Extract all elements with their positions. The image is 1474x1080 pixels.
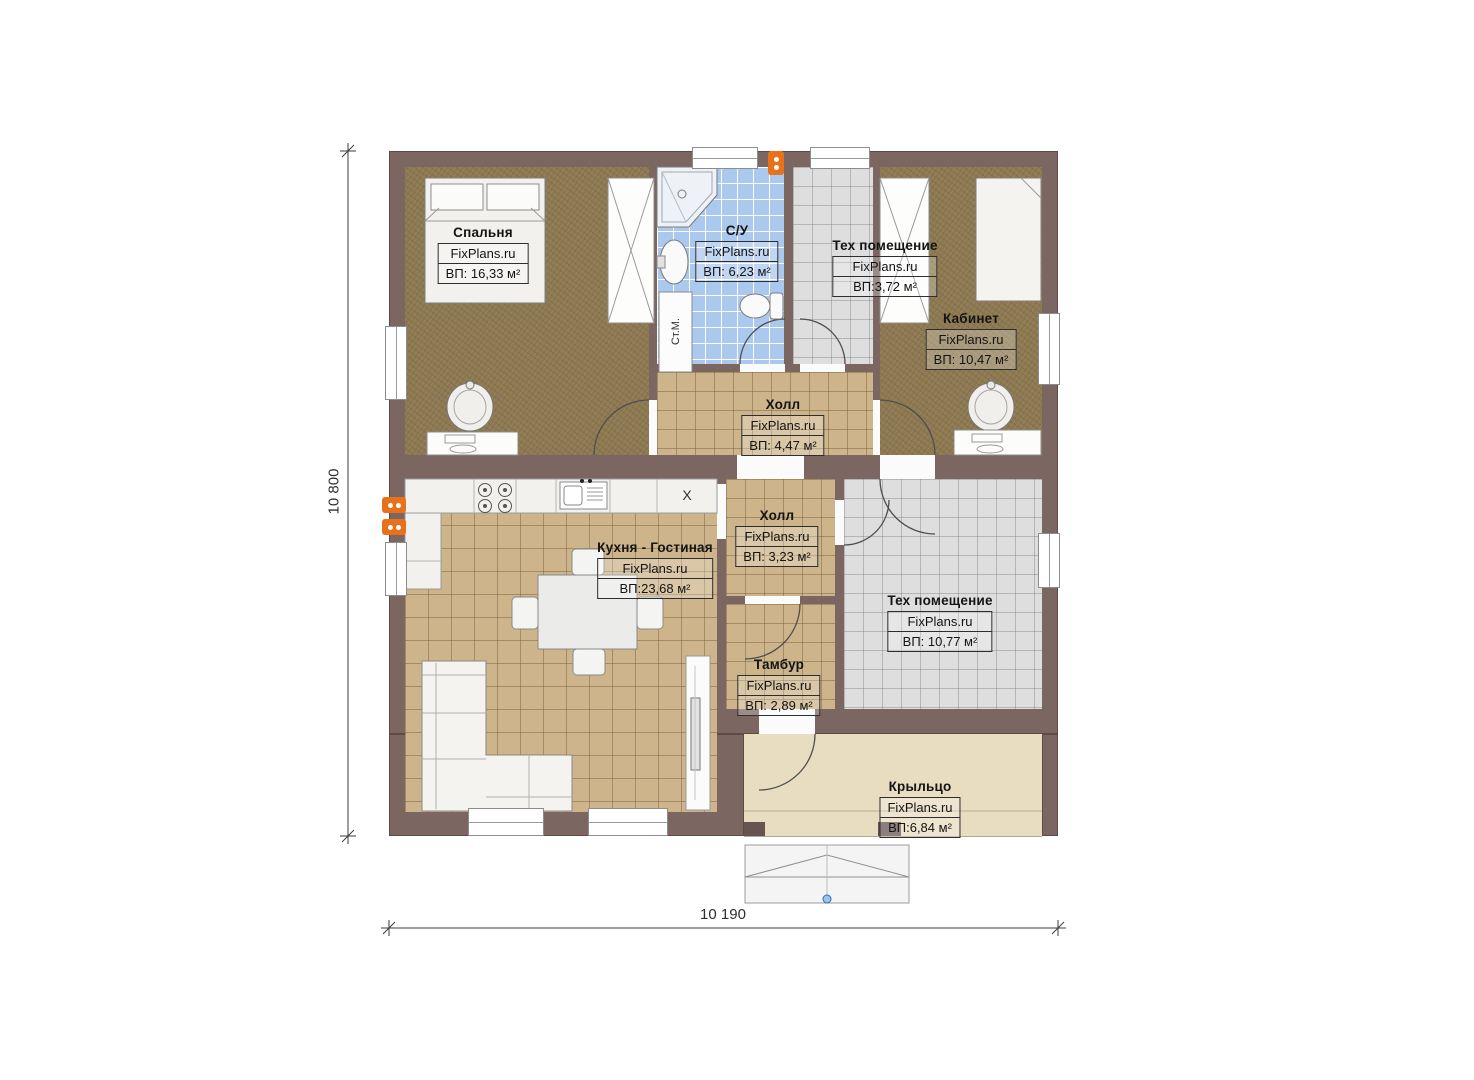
entry-steps-icon — [745, 845, 909, 903]
room-area: ВП: 16,33 м² — [438, 264, 529, 284]
room-label-office: Кабинет FixPlans.ru ВП: 10,47 м² — [926, 311, 1017, 370]
room-title: Кухня - Гостиная — [597, 540, 713, 556]
fridge-mark-label: X — [672, 487, 702, 503]
room-area: ВП:6,84 м² — [879, 818, 960, 838]
room-label-bathroom: С/У FixPlans.ru ВП: 6,23 м² — [695, 223, 778, 282]
room-brand: FixPlans.ru — [879, 797, 960, 818]
room-title: Крыльцо — [879, 779, 960, 795]
window-tech-large-right — [1038, 533, 1060, 588]
tv-stand-icon — [686, 656, 710, 810]
room-label-kitchen-living: Кухня - Гостиная FixPlans.ru ВП:23,68 м² — [597, 540, 713, 599]
room-brand: FixPlans.ru — [737, 675, 820, 696]
socket-icon-2 — [382, 519, 406, 535]
room-area: ВП: 3,23 м² — [735, 547, 818, 567]
room-brand: FixPlans.ru — [741, 415, 824, 436]
room-label-hall-upper: Холл FixPlans.ru ВП: 4,47 м² — [741, 397, 824, 456]
room-area: ВП: 2,89 м² — [737, 696, 820, 716]
electrical-panel-icon — [768, 151, 784, 175]
sofa-icon — [422, 661, 572, 811]
window-living-left — [385, 542, 407, 596]
kitchen-sink-icon — [560, 479, 607, 509]
room-area: ВП: 10,47 м² — [926, 350, 1017, 370]
dimension-height-label: 10 800 — [326, 447, 343, 537]
room-area: ВП:23,68 м² — [597, 579, 713, 599]
room-label-porch: Крыльцо FixPlans.ru ВП:6,84 м² — [879, 779, 960, 838]
room-area: ВП: 6,23 м² — [695, 262, 778, 282]
room-label-tech-large: Тех помещение FixPlans.ru ВП: 10,77 м² — [887, 593, 992, 652]
room-area: ВП:3,72 м² — [832, 277, 937, 297]
room-area: ВП: 4,47 м² — [741, 436, 824, 456]
wardrobe-bedroom-icon — [608, 178, 654, 323]
socket-icon-1 — [382, 497, 406, 513]
window-bathroom-top — [692, 147, 758, 169]
room-title: Тамбур — [737, 657, 820, 673]
window-tech-small-top — [810, 147, 870, 169]
window-living-bottom-1 — [468, 808, 544, 836]
pot-office-icon — [959, 381, 1023, 431]
room-brand: FixPlans.ru — [735, 526, 818, 547]
room-brand: FixPlans.ru — [695, 241, 778, 262]
floor-plan-page: 10 800 10 190 — [0, 0, 1474, 1080]
room-title: Тех помещение — [887, 593, 992, 609]
room-title: С/У — [695, 223, 778, 239]
pot-bedroom-icon — [438, 381, 502, 431]
room-brand: FixPlans.ru — [438, 243, 529, 264]
room-title: Холл — [741, 397, 824, 413]
room-label-bedroom: Спальня FixPlans.ru ВП: 16,33 м² — [438, 225, 529, 284]
desk-office-icon — [954, 430, 1041, 455]
room-brand: FixPlans.ru — [597, 558, 713, 579]
room-label-tech-small: Тех помещение FixPlans.ru ВП:3,72 м² — [832, 238, 937, 297]
window-office-right — [1038, 313, 1060, 385]
sink-icon — [657, 240, 688, 284]
window-living-bottom-2 — [588, 808, 668, 836]
desk-bedroom-icon — [427, 432, 518, 455]
room-brand: FixPlans.ru — [832, 256, 937, 277]
room-label-hall-lower: Холл FixPlans.ru ВП: 3,23 м² — [735, 508, 818, 567]
room-area: ВП: 10,77 м² — [887, 632, 992, 652]
shower-icon — [657, 167, 717, 227]
window-bedroom-left — [385, 326, 407, 400]
room-title: Тех помещение — [832, 238, 937, 254]
house-plan: Ст.М. X Спальня FixPlans.ru ВП: 16,33 м²… — [389, 151, 1058, 836]
room-label-tambour: Тамбур FixPlans.ru ВП: 2,89 м² — [737, 657, 820, 716]
washing-machine-label: Ст.М. — [659, 292, 692, 372]
toilet-icon — [740, 293, 783, 319]
single-bed-icon — [976, 178, 1041, 301]
room-title: Холл — [735, 508, 818, 524]
room-brand: FixPlans.ru — [887, 611, 992, 632]
room-title: Спальня — [438, 225, 529, 241]
room-brand: FixPlans.ru — [926, 329, 1017, 350]
room-title: Кабинет — [926, 311, 1017, 327]
